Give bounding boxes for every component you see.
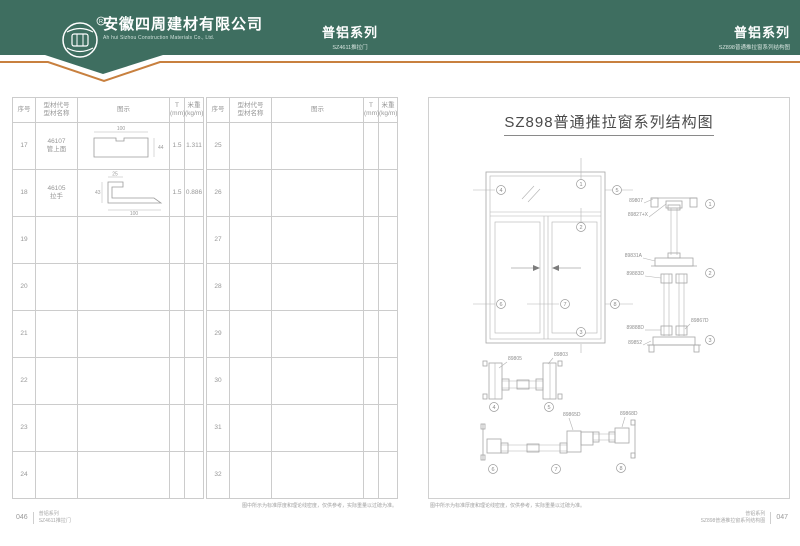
glass-hatch-marks	[522, 186, 540, 202]
catalog-page: R 安徽四周建材有限公司 Ah hui Sizhou Construction …	[0, 0, 800, 546]
table-header-row: 序号 型材代号型材名称 图示 T(mm) 米重(kg/m)	[207, 98, 398, 123]
callout-4: 4	[497, 186, 506, 195]
cell-no: 21	[13, 311, 36, 358]
part-label: 89865D	[563, 412, 581, 418]
footer-sub-right: SZ898普通推拉窗系列结构图	[701, 518, 766, 525]
profile-drawing-handle: 25 43 100	[78, 170, 171, 216]
registered-trademark-icon: R	[97, 17, 105, 25]
callout-5: 5	[613, 186, 622, 195]
table-row: 18 46105拉手 25 43 100 1.5 0.886	[13, 170, 204, 217]
cell-figure	[78, 405, 170, 452]
section-callout-1: 1	[706, 200, 715, 209]
cell-thickness	[170, 452, 185, 499]
svg-text:6: 6	[491, 467, 494, 473]
diagram-title: SZ898普通推拉窗系列结构图	[504, 111, 713, 136]
part-label: 89831A	[625, 253, 643, 259]
part-label: 89803	[554, 352, 568, 358]
svg-text:100: 100	[117, 126, 126, 132]
cell-figure	[272, 264, 364, 311]
svg-text:6: 6	[499, 302, 502, 308]
cell-weight	[379, 405, 398, 452]
part-label: 89805	[508, 356, 522, 362]
header-chevron-decoration	[0, 53, 800, 85]
footer-left: 046 普铝系列 SZ4611推拉门	[16, 511, 71, 524]
profile-table-right-half: 序号 型材代号型材名称 图示 T(mm) 米重(kg/m) 25 26 27 2…	[206, 97, 398, 499]
table-row: 31	[207, 405, 398, 452]
callout-2: 2	[577, 223, 586, 232]
cell-weight	[185, 217, 204, 264]
col-header-figure: 图示	[78, 98, 170, 123]
series-subtitle-center: SZ4611推拉门	[305, 43, 395, 51]
col-header-code-name: 型材代号型材名称	[230, 98, 272, 123]
part-label: 89868D	[620, 411, 638, 417]
svg-text:1: 1	[579, 182, 582, 188]
header-series-center: 普铝系列 SZ4611推拉门	[305, 22, 395, 51]
cell-no: 28	[207, 264, 230, 311]
slide-direction-arrows	[511, 265, 581, 271]
cell-code-name	[230, 264, 272, 311]
diagram-note: 图中所示为标准厚度和理论线密度，仅供参考，实际重量以过磅为准。	[430, 502, 650, 509]
cell-figure	[78, 311, 170, 358]
cell-no: 29	[207, 311, 230, 358]
company-name-cn: 安徽四周建材有限公司	[103, 16, 263, 33]
table-header-row: 序号 型材代号型材名称 图示 T(mm) 米重(kg/m)	[13, 98, 204, 123]
cell-figure	[272, 217, 364, 264]
callout-8: 8	[611, 300, 620, 309]
table-row: 26	[207, 170, 398, 217]
table-row: 28	[207, 264, 398, 311]
cell-no: 18	[13, 170, 36, 217]
cell-code-name	[36, 217, 78, 264]
cell-no: 32	[207, 452, 230, 499]
cell-no: 26	[207, 170, 230, 217]
cell-code-name: 46107管上面	[36, 123, 78, 170]
callout-1: 1	[577, 180, 586, 189]
cell-thickness	[170, 217, 185, 264]
svg-text:3: 3	[579, 330, 582, 336]
svg-text:7: 7	[554, 467, 557, 473]
cell-thickness	[364, 123, 379, 170]
cell-weight	[185, 358, 204, 405]
cell-thickness	[364, 358, 379, 405]
cell-code-name	[230, 405, 272, 452]
header-series-right: 普铝系列 SZ898普通推拉窗系列结构图	[628, 22, 790, 51]
cell-figure	[272, 123, 364, 170]
cell-thickness	[170, 264, 185, 311]
company-name-block: 安徽四周建材有限公司 Ah hui Sizhou Construction Ma…	[103, 16, 263, 41]
page-number-right: 047	[776, 514, 788, 521]
cell-no: 24	[13, 452, 36, 499]
footer-divider	[770, 512, 771, 524]
window-front-view: 1 2 3 4 5 6 7 8	[473, 158, 633, 353]
cell-code-name	[36, 452, 78, 499]
svg-text:3: 3	[708, 338, 711, 344]
profile-tables: 序号 型材代号型材名称 图示 T(mm) 米重(kg/m) 17 46107管上…	[12, 97, 398, 499]
cell-figure	[272, 405, 364, 452]
cell-thickness	[170, 405, 185, 452]
footer-divider	[33, 512, 34, 524]
cell-figure: 25 43 100	[78, 170, 170, 217]
section-callout-7: 7	[552, 465, 561, 474]
series-title-center: 普铝系列	[305, 22, 395, 41]
svg-text:2: 2	[708, 271, 711, 277]
section-callout-2: 2	[706, 269, 715, 278]
cell-weight	[379, 264, 398, 311]
cell-no: 22	[13, 358, 36, 405]
cell-figure	[78, 452, 170, 499]
cell-code-name	[36, 358, 78, 405]
col-header-no: 序号	[207, 98, 230, 123]
company-name-en: Ah hui Sizhou Construction Materials Co.…	[103, 35, 263, 41]
cell-weight: 1.311	[185, 123, 204, 170]
part-label: 89852	[628, 340, 642, 346]
svg-text:100: 100	[130, 211, 139, 216]
page-number-left: 046	[16, 514, 28, 521]
cell-figure	[78, 217, 170, 264]
cell-figure	[272, 452, 364, 499]
cell-thickness	[170, 358, 185, 405]
cell-code-name	[36, 405, 78, 452]
svg-text:43: 43	[95, 190, 101, 196]
profile-table: 序号 型材代号型材名称 图示 T(mm) 米重(kg/m) 17 46107管上…	[12, 97, 204, 499]
table-row: 27	[207, 217, 398, 264]
col-header-no: 序号	[13, 98, 36, 123]
cell-code-name	[36, 264, 78, 311]
cell-no: 20	[13, 264, 36, 311]
col-header-weight: 米重(kg/m)	[379, 98, 398, 123]
table-row: 29	[207, 311, 398, 358]
cell-code-name	[230, 311, 272, 358]
horizontal-section-b: 89865D 89868D 6 7 8	[481, 411, 638, 474]
cell-weight	[379, 217, 398, 264]
callout-6: 6	[497, 300, 506, 309]
table-row: 24	[13, 452, 204, 499]
table-row: 32	[207, 452, 398, 499]
cell-no: 31	[207, 405, 230, 452]
cell-no: 30	[207, 358, 230, 405]
cell-no: 19	[13, 217, 36, 264]
cell-thickness	[170, 311, 185, 358]
table-row: 22	[13, 358, 204, 405]
svg-text:25: 25	[112, 172, 118, 178]
cell-thickness	[364, 264, 379, 311]
cell-code-name	[36, 311, 78, 358]
window-structure-diagram: 1 2 3 4 5 6 7 8	[429, 98, 789, 498]
svg-text:8: 8	[613, 302, 616, 308]
cell-thickness	[364, 311, 379, 358]
table-row: 17 46107管上面 100 44 1.5 1.311	[13, 123, 204, 170]
col-header-weight: 米重(kg/m)	[185, 98, 204, 123]
cell-figure	[78, 264, 170, 311]
cell-weight	[379, 452, 398, 499]
part-label: 89867D	[691, 318, 709, 324]
table-row: 20	[13, 264, 204, 311]
svg-text:44: 44	[158, 145, 164, 151]
callout-7: 7	[561, 300, 570, 309]
series-subtitle-right: SZ898普通推拉窗系列结构图	[628, 43, 790, 51]
table-row: 30	[207, 358, 398, 405]
cell-thickness	[364, 405, 379, 452]
structure-diagram-panel: SZ898普通推拉窗系列结构图	[428, 97, 790, 499]
company-logo-icon: R	[56, 13, 108, 65]
table-note: 图中所示为标准厚度和理论线密度，仅供参考，实际重量以过磅为准。	[205, 502, 397, 509]
col-header-thickness: T(mm)	[170, 98, 185, 123]
cell-code-name	[230, 217, 272, 264]
section-callout-4: 4	[490, 403, 499, 412]
svg-text:5: 5	[547, 405, 550, 411]
callout-3: 3	[577, 328, 586, 337]
table-row: 19	[13, 217, 204, 264]
section-callout-6: 6	[489, 465, 498, 474]
profile-table: 序号 型材代号型材名称 图示 T(mm) 米重(kg/m) 25 26 27 2…	[206, 97, 398, 499]
table-row: 25	[207, 123, 398, 170]
section-callout-5: 5	[545, 403, 554, 412]
section-callout-8: 8	[617, 464, 626, 473]
cell-figure	[272, 311, 364, 358]
profile-table-left-half: 序号 型材代号型材名称 图示 T(mm) 米重(kg/m) 17 46107管上…	[12, 97, 204, 499]
svg-text:4: 4	[499, 188, 502, 194]
cell-weight	[185, 264, 204, 311]
cell-figure	[272, 170, 364, 217]
table-row: 21	[13, 311, 204, 358]
section-callout-3: 3	[706, 336, 715, 345]
vertical-section-view: 89807 89827+X 89831A 89883D 89888D 89852…	[625, 198, 715, 352]
table-row: 23	[13, 405, 204, 452]
svg-text:4: 4	[492, 405, 495, 411]
cell-thickness: 1.5	[170, 123, 185, 170]
cell-weight	[379, 123, 398, 170]
horizontal-section-a: 89805 89803 4 5	[483, 352, 568, 412]
part-label: 89827+X	[628, 212, 649, 218]
cell-figure: 100 44	[78, 123, 170, 170]
svg-text:8: 8	[619, 466, 622, 472]
footer-right: 普铝系列 SZ898普通推拉窗系列结构图 047	[701, 511, 788, 524]
svg-text:2: 2	[579, 225, 582, 231]
cell-no: 25	[207, 123, 230, 170]
cell-code-name	[230, 452, 272, 499]
cell-weight	[185, 452, 204, 499]
series-title-right: 普铝系列	[628, 22, 790, 41]
col-header-figure: 图示	[272, 98, 364, 123]
cell-weight	[379, 358, 398, 405]
cell-no: 17	[13, 123, 36, 170]
profile-drawing-tube: 100 44	[78, 123, 171, 169]
footer-sub-left: SZ4611推拉门	[39, 518, 71, 525]
part-label: 89888D	[626, 325, 644, 331]
cell-weight	[185, 405, 204, 452]
cell-code-name	[230, 123, 272, 170]
cell-code-name	[230, 358, 272, 405]
cell-code-name: 46105拉手	[36, 170, 78, 217]
cell-no: 23	[13, 405, 36, 452]
svg-text:R: R	[99, 19, 103, 25]
svg-text:7: 7	[563, 302, 566, 308]
part-label: 89807	[629, 198, 643, 204]
col-header-code-name: 型材代号型材名称	[36, 98, 78, 123]
svg-text:5: 5	[615, 188, 618, 194]
cell-weight	[379, 170, 398, 217]
svg-text:1: 1	[708, 202, 711, 208]
cell-weight: 0.886	[185, 170, 204, 217]
cell-code-name	[230, 170, 272, 217]
cell-weight	[379, 311, 398, 358]
cell-thickness: 1.5	[170, 170, 185, 217]
cell-no: 27	[207, 217, 230, 264]
cell-thickness	[364, 170, 379, 217]
cell-figure	[272, 358, 364, 405]
cell-thickness	[364, 217, 379, 264]
cell-figure	[78, 358, 170, 405]
cell-thickness	[364, 452, 379, 499]
col-header-thickness: T(mm)	[364, 98, 379, 123]
cell-weight	[185, 311, 204, 358]
part-label: 89883D	[626, 271, 644, 277]
